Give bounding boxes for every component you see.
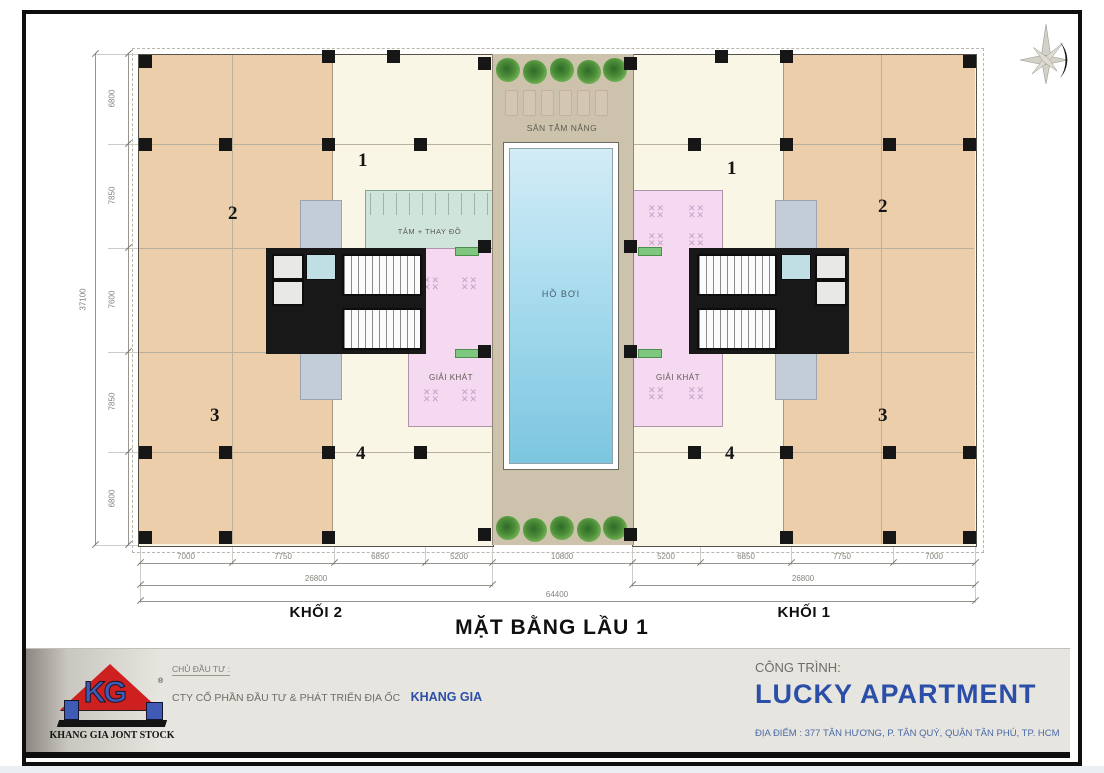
stair-left-1 [342, 254, 422, 296]
stair-lift-core-right [689, 248, 849, 354]
dimension-half-left: 26800 [291, 574, 341, 583]
logo-caption: KHANG GIA JONT STOCK [44, 730, 180, 741]
compass-rose-icon [1008, 22, 1084, 98]
unit-1-right: 1 [727, 158, 737, 180]
logo-kg-monogram: KG [84, 676, 125, 710]
unit-1-left: 1 [358, 150, 368, 172]
pool-label: HỒ BƠI [504, 289, 618, 299]
investor-line: CTY CỔ PHẦN ĐẦU TƯ & PHÁT TRIỂN ĐỊA ỐC K… [172, 688, 482, 706]
logo-base [57, 720, 167, 727]
project-label: CÔNG TRÌNH: [755, 660, 841, 675]
unit-2-right: 2 [878, 196, 888, 218]
unit-2-left: 2 [228, 203, 238, 225]
room-changing-label: TẮM + THAY ĐỒ [366, 227, 493, 236]
dimension-half-right: 26800 [778, 574, 828, 583]
investor-name: KHANG GIA [411, 690, 483, 704]
sun-deck-label: SÂN TẮM NẮNG [492, 123, 632, 133]
room-refreshment-right-label: GIẢI KHÁT [634, 373, 722, 382]
stair-left-2 [342, 308, 422, 350]
wc-cell [306, 254, 336, 280]
project-address: ĐỊA ĐIỂM : 377 TÂN HƯƠNG, P. TÂN QUÝ, QU… [755, 728, 1060, 739]
footer-bottom-bar [26, 752, 1070, 758]
page-title: MẶT BẰNG LẦU 1 [402, 616, 702, 640]
unit-3-right: 3 [878, 405, 888, 427]
stair-lift-core-left [266, 248, 426, 354]
swimming-pool: HỒ BƠI [503, 142, 619, 470]
lift-lobby [300, 352, 342, 400]
unit-4-right: 4 [725, 443, 735, 465]
floor-plan: TẮM + THAY ĐỒ ✕✕✕✕ ✕✕✕✕ ✕✕✕✕ ✕✕✕✕ GIẢI K… [0, 0, 1104, 650]
unit-4-left: 4 [356, 443, 366, 465]
elevator [815, 280, 847, 306]
elevator [272, 254, 304, 280]
unit-3-left: 3 [210, 405, 220, 427]
stair-right-2 [697, 308, 777, 350]
khoi-1-label: KHỐI 1 [729, 604, 879, 621]
elevator [815, 254, 847, 280]
stair-right-1 [697, 254, 777, 296]
dimension-total-vertical: 37100 [79, 280, 88, 320]
khoi-2-label: KHỐI 2 [241, 604, 391, 621]
investor-company: CTY CỔ PHẦN ĐẦU TƯ & PHÁT TRIỂN ĐỊA ỐC [172, 692, 400, 704]
lift-lobby [775, 352, 817, 400]
dimension-total-bottom: 64400 [532, 590, 582, 599]
project-name: LUCKY APARTMENT [755, 679, 1037, 710]
lift-lobby [775, 200, 817, 250]
room-refreshment-left-label: GIẢI KHÁT [409, 373, 493, 382]
elevator [272, 280, 304, 306]
wc-cell [781, 254, 811, 280]
lift-lobby [300, 200, 342, 250]
company-logo: KG ® KHANG GIA JONT STOCK [50, 660, 180, 752]
investor-label: CHỦ ĐẦU TƯ : [172, 664, 230, 676]
page-edge [0, 766, 1104, 773]
room-changing: TẮM + THAY ĐỒ [365, 190, 494, 250]
